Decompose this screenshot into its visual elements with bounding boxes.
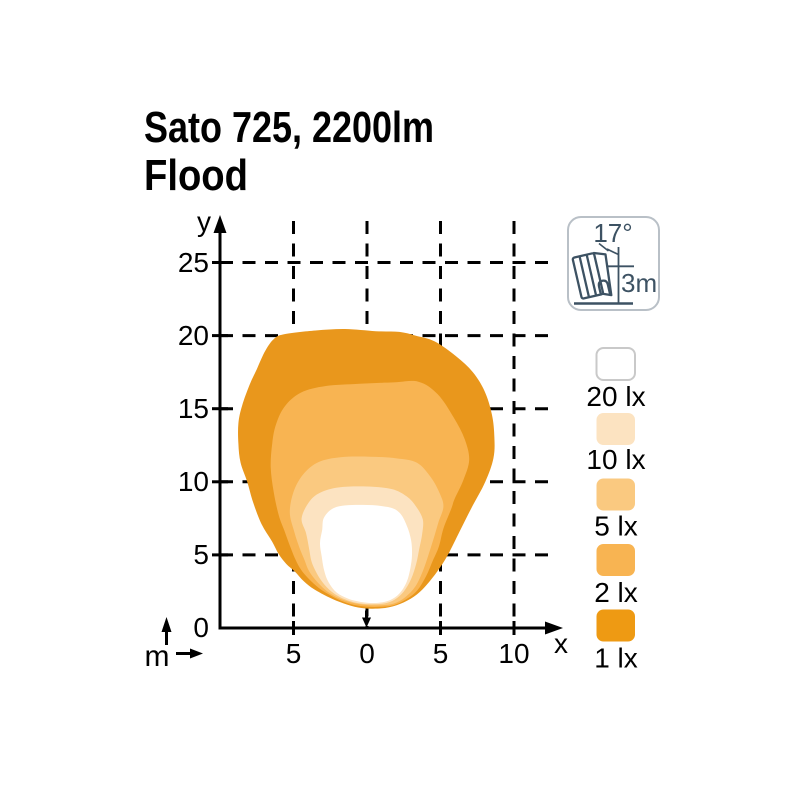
svg-text:0: 0 <box>359 638 375 669</box>
svg-text:5: 5 <box>193 539 209 570</box>
svg-text:5 lx: 5 lx <box>594 511 638 542</box>
svg-text:5: 5 <box>433 638 449 669</box>
svg-text:25: 25 <box>178 247 209 278</box>
svg-text:10 lx: 10 lx <box>586 444 645 475</box>
svg-text:10: 10 <box>178 466 209 497</box>
svg-text:3m: 3m <box>621 268 657 298</box>
svg-text:1 lx: 1 lx <box>594 643 638 674</box>
svg-text:x: x <box>554 628 568 659</box>
svg-text:0: 0 <box>193 612 209 643</box>
svg-text:Flood: Flood <box>144 151 248 200</box>
svg-text:Sato 725, 2200lm: Sato 725, 2200lm <box>144 103 434 152</box>
svg-text:20: 20 <box>178 320 209 351</box>
svg-text:10: 10 <box>498 638 529 669</box>
svg-text:y: y <box>197 206 211 237</box>
svg-text:20 lx: 20 lx <box>586 381 645 412</box>
svg-text:5: 5 <box>286 638 302 669</box>
svg-text:2 lx: 2 lx <box>594 577 638 608</box>
svg-text:15: 15 <box>178 393 209 424</box>
